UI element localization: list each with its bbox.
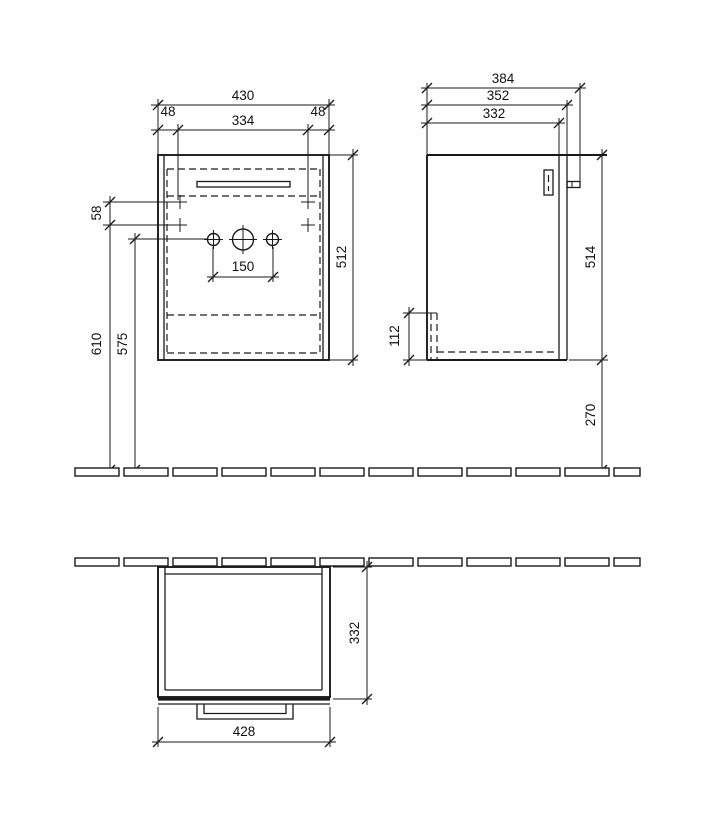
side-view: [403, 83, 607, 360]
dim-label-352: 352: [487, 88, 510, 103]
floor-hatch-upper: [75, 468, 640, 476]
dim-label-332-side: 332: [483, 106, 506, 121]
mounting-cross-marks: [173, 195, 315, 232]
dim-side-clearance: 270: [583, 360, 607, 475]
dim-front-mount-height: 610: [89, 225, 115, 475]
dim-label-48-right: 48: [310, 104, 325, 119]
dim-side-body-depth: 332: [421, 106, 565, 128]
dim-label-58: 58: [89, 205, 104, 220]
dim-label-332-plan: 332: [347, 622, 362, 645]
dim-label-270: 270: [583, 404, 598, 427]
side-view-dimensions: 384 352 332 514 270: [387, 71, 608, 475]
front-view-dimensions: 430 48 334 48 58 610: [89, 88, 358, 475]
plan-handle: [197, 704, 293, 719]
dim-plan-depth: 332: [333, 561, 372, 705]
dim-label-384: 384: [492, 71, 515, 86]
dim-label-334: 334: [232, 113, 255, 128]
dim-label-428: 428: [233, 724, 256, 739]
dim-label-610: 610: [89, 333, 104, 356]
dim-label-112: 112: [387, 325, 402, 347]
dim-front-height: 512: [334, 149, 358, 366]
front-handle-slot: [197, 182, 290, 188]
plan-cabinet-outline: [158, 567, 330, 697]
dim-front-mount-width: 48 334 48: [151, 104, 335, 200]
dim-label-150: 150: [232, 259, 255, 274]
technical-drawing-sheet: 430 48 334 48 58 610: [0, 0, 704, 836]
vanity-dimension-drawing: 430 48 334 48 58 610: [0, 0, 704, 836]
dim-front-tap-height: 575: [115, 233, 208, 475]
dim-label-514: 514: [583, 245, 598, 268]
dim-front-mount-spacing: 58: [89, 196, 184, 231]
dim-label-575: 575: [115, 333, 130, 356]
side-hinge-plate: [544, 170, 553, 195]
plan-view: [158, 567, 330, 719]
dim-label-512: 512: [334, 246, 349, 269]
front-view: [158, 155, 358, 360]
dim-label-48-left: 48: [160, 104, 175, 119]
dim-side-cutout: 112: [387, 307, 427, 366]
front-cabinet-outline: [158, 155, 329, 360]
dim-label-430: 430: [232, 88, 255, 103]
wall-hatch-plan: [75, 558, 640, 566]
side-handle: [567, 182, 580, 188]
tap-holes: [204, 225, 282, 254]
